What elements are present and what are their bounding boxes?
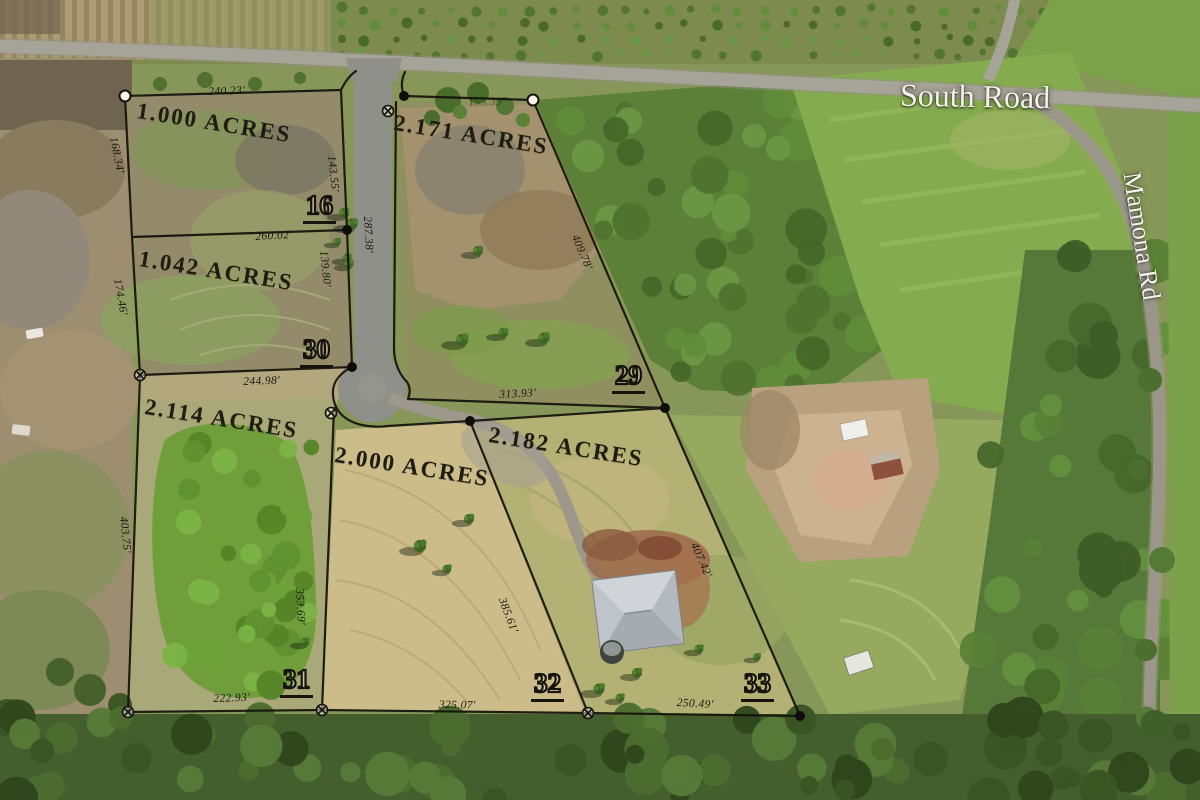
lot-number: 30 bbox=[300, 336, 333, 368]
dimension-label: 313.93' bbox=[499, 387, 536, 401]
aerial-plat-map: 1.000 ACRES 1.042 ACRES 2.114 ACRES 2.17… bbox=[0, 0, 1200, 800]
dimension-label: 244.98' bbox=[243, 375, 280, 388]
lot-acreage-label: 2.171 ACRES bbox=[392, 110, 550, 160]
dimension-label: 325.07' bbox=[439, 699, 476, 712]
dimension-label: 174.46' bbox=[111, 278, 129, 316]
road-label-mamona: Mamona Rd bbox=[1116, 170, 1166, 302]
lot-number: 31 bbox=[280, 666, 313, 698]
lot-acreage-label: 2.114 ACRES bbox=[143, 394, 300, 444]
dimension-label: 407.42' bbox=[688, 541, 714, 580]
dimension-label: 139.80' bbox=[317, 250, 333, 288]
lot-number: 16 bbox=[303, 192, 336, 224]
dimension-label: 409.78' bbox=[569, 233, 594, 272]
lot-number: 32 bbox=[531, 670, 564, 702]
dimension-label: 168.34' bbox=[107, 136, 126, 175]
dimension-label: 143.55' bbox=[325, 155, 341, 193]
lot-acreage-label: 2.000 ACRES bbox=[333, 442, 491, 492]
map-labels: 1.000 ACRES 1.042 ACRES 2.114 ACRES 2.17… bbox=[0, 0, 1200, 800]
dimension-label: 385.61' bbox=[496, 596, 520, 635]
lot-number: 29 bbox=[612, 362, 645, 394]
dimension-label: 240.23' bbox=[208, 85, 245, 98]
lot-acreage-label: 1.042 ACRES bbox=[137, 246, 295, 296]
lot-acreage-label: 2.182 ACRES bbox=[487, 422, 645, 472]
dimension-label: 287.38' bbox=[361, 216, 375, 253]
dimension-label: 403.75' bbox=[117, 516, 133, 554]
road-label-south: South Road bbox=[900, 77, 1051, 117]
dimension-label: 260.02' bbox=[255, 229, 292, 243]
dimension-label: 250.49' bbox=[676, 697, 713, 711]
lot-acreage-label: 1.000 ACRES bbox=[135, 98, 293, 148]
dimension-label: 353.69' bbox=[293, 588, 307, 625]
dimension-label: 222.93' bbox=[213, 692, 250, 705]
lot-number: 33 bbox=[741, 670, 774, 702]
dimension-label: 155.39' bbox=[468, 96, 505, 109]
